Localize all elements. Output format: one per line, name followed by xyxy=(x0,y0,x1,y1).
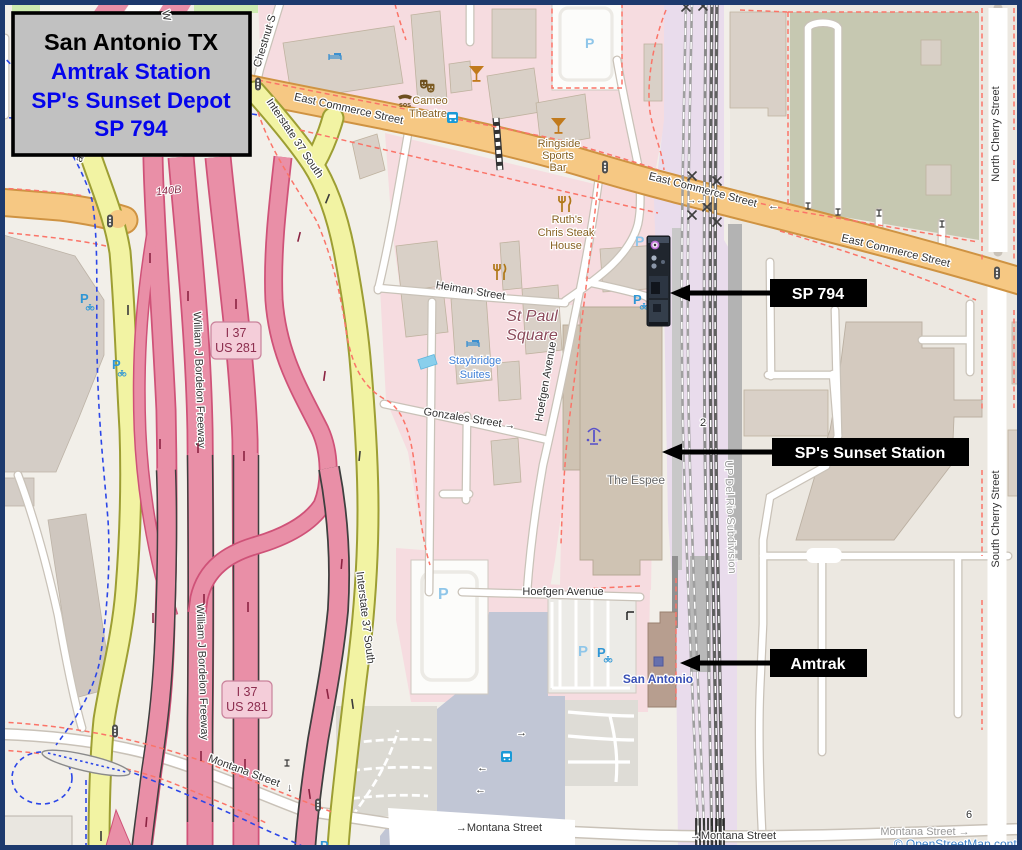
svg-text:sos: sos xyxy=(399,102,411,109)
svg-text:South Cherry Street: South Cherry Street xyxy=(990,470,1002,567)
svg-text:←: ← xyxy=(477,762,488,774)
svg-text:North Cherry Street: North Cherry Street xyxy=(990,86,1002,181)
svg-text:SP's Sunset Station: SP's Sunset Station xyxy=(795,445,946,462)
svg-text:P: P xyxy=(633,292,642,307)
svg-text:6: 6 xyxy=(966,809,972,821)
svg-text:2: 2 xyxy=(700,417,706,429)
svg-text:Bar: Bar xyxy=(549,162,566,174)
svg-text:P: P xyxy=(597,645,606,660)
svg-text:St Paul: St Paul xyxy=(506,308,558,325)
svg-text:Ringside: Ringside xyxy=(538,138,581,150)
svg-text:US 281: US 281 xyxy=(215,341,257,355)
svg-text:→Montana Street: →Montana Street xyxy=(456,822,542,834)
svg-text:San Antonio: San Antonio xyxy=(623,672,693,686)
svg-text:SP 794: SP 794 xyxy=(94,116,168,141)
svg-text:↓: ↓ xyxy=(287,782,293,794)
svg-text:San Antonio TX: San Antonio TX xyxy=(44,29,218,55)
svg-text:Amtrak Station: Amtrak Station xyxy=(51,59,211,84)
svg-text:SP's Sunset Depot: SP's Sunset Depot xyxy=(31,88,231,113)
svg-text:P: P xyxy=(585,35,594,51)
svg-text:House: House xyxy=(550,240,582,252)
svg-text:Hoefgen Avenue: Hoefgen Avenue xyxy=(522,586,603,598)
svg-text:→Montana Street: →Montana Street xyxy=(690,830,776,842)
svg-text:Suites: Suites xyxy=(460,369,491,381)
svg-text:I 37: I 37 xyxy=(226,326,247,340)
svg-text:P: P xyxy=(80,291,89,306)
svg-text:→←: →← xyxy=(687,195,705,205)
svg-text:P: P xyxy=(635,233,644,249)
svg-text:P: P xyxy=(438,586,449,603)
svg-text:→: → xyxy=(516,727,527,739)
svg-text:Theatre: Theatre xyxy=(409,108,447,120)
svg-text:P: P xyxy=(578,643,588,660)
svg-text:Amtrak: Amtrak xyxy=(790,656,845,673)
svg-text:Staybridge: Staybridge xyxy=(449,355,502,367)
svg-text:←: ← xyxy=(768,200,779,212)
svg-text:SP 794: SP 794 xyxy=(792,286,844,303)
svg-text:Cameo: Cameo xyxy=(412,95,447,107)
svg-text:I 37: I 37 xyxy=(237,685,258,699)
svg-text:Square: Square xyxy=(506,327,558,344)
svg-text:US 281: US 281 xyxy=(226,700,268,714)
svg-text:P: P xyxy=(112,357,121,372)
svg-text:←: ← xyxy=(475,784,486,796)
svg-text:The Espee: The Espee xyxy=(607,473,665,487)
svg-text:Chris Steak: Chris Steak xyxy=(538,227,595,239)
svg-text:Sports: Sports xyxy=(542,150,574,162)
svg-text:Ruth's: Ruth's xyxy=(552,214,583,226)
